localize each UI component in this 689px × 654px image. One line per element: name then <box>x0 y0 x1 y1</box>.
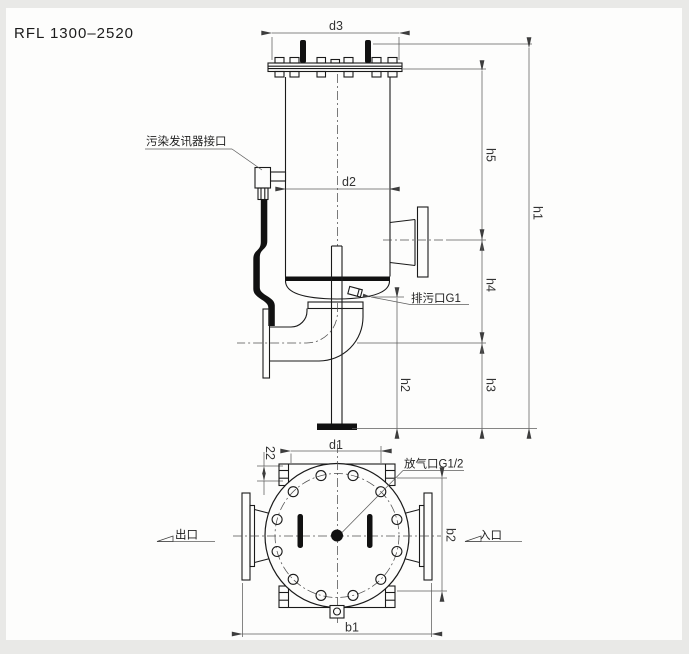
drain-port-label: 排污口G1 <box>411 291 461 305</box>
inlet-label: 入口 <box>479 529 502 542</box>
h5-label: h5 <box>484 148 498 162</box>
drawing-sheet: RFL 1300–2520 d3 <box>0 0 689 654</box>
transmitter-stub <box>271 172 286 181</box>
d1-label: d1 <box>329 438 343 452</box>
transmitter-body <box>255 168 271 189</box>
support-foot <box>317 424 357 431</box>
technical-drawing: RFL 1300–2520 d3 <box>0 0 689 654</box>
pollution-port-label: 污染发讯器接口 <box>146 134 227 148</box>
d2-label: d2 <box>342 175 356 189</box>
drawing-title: RFL 1300–2520 <box>14 25 134 42</box>
h3-label: h3 <box>484 378 498 392</box>
outlet-label: 出口 <box>175 528 198 542</box>
pad-width-label: 22 <box>263 446 277 460</box>
handle-slot-left <box>298 514 304 548</box>
h2-label: h2 <box>398 378 412 392</box>
vent-port-label: 放气口G1/2 <box>404 457 463 471</box>
left-handle <box>300 40 306 63</box>
b2-label: b2 <box>444 528 458 542</box>
b1-label: b1 <box>345 621 359 635</box>
bottom-weld-band <box>285 277 390 282</box>
h1-label: h1 <box>531 206 545 220</box>
h4-label: h4 <box>484 278 498 292</box>
vent-port-dot <box>331 530 343 542</box>
d3-label: d3 <box>329 19 343 33</box>
right-handle <box>365 40 371 63</box>
handle-slot-right <box>367 514 373 548</box>
bottom-boss <box>330 606 344 619</box>
